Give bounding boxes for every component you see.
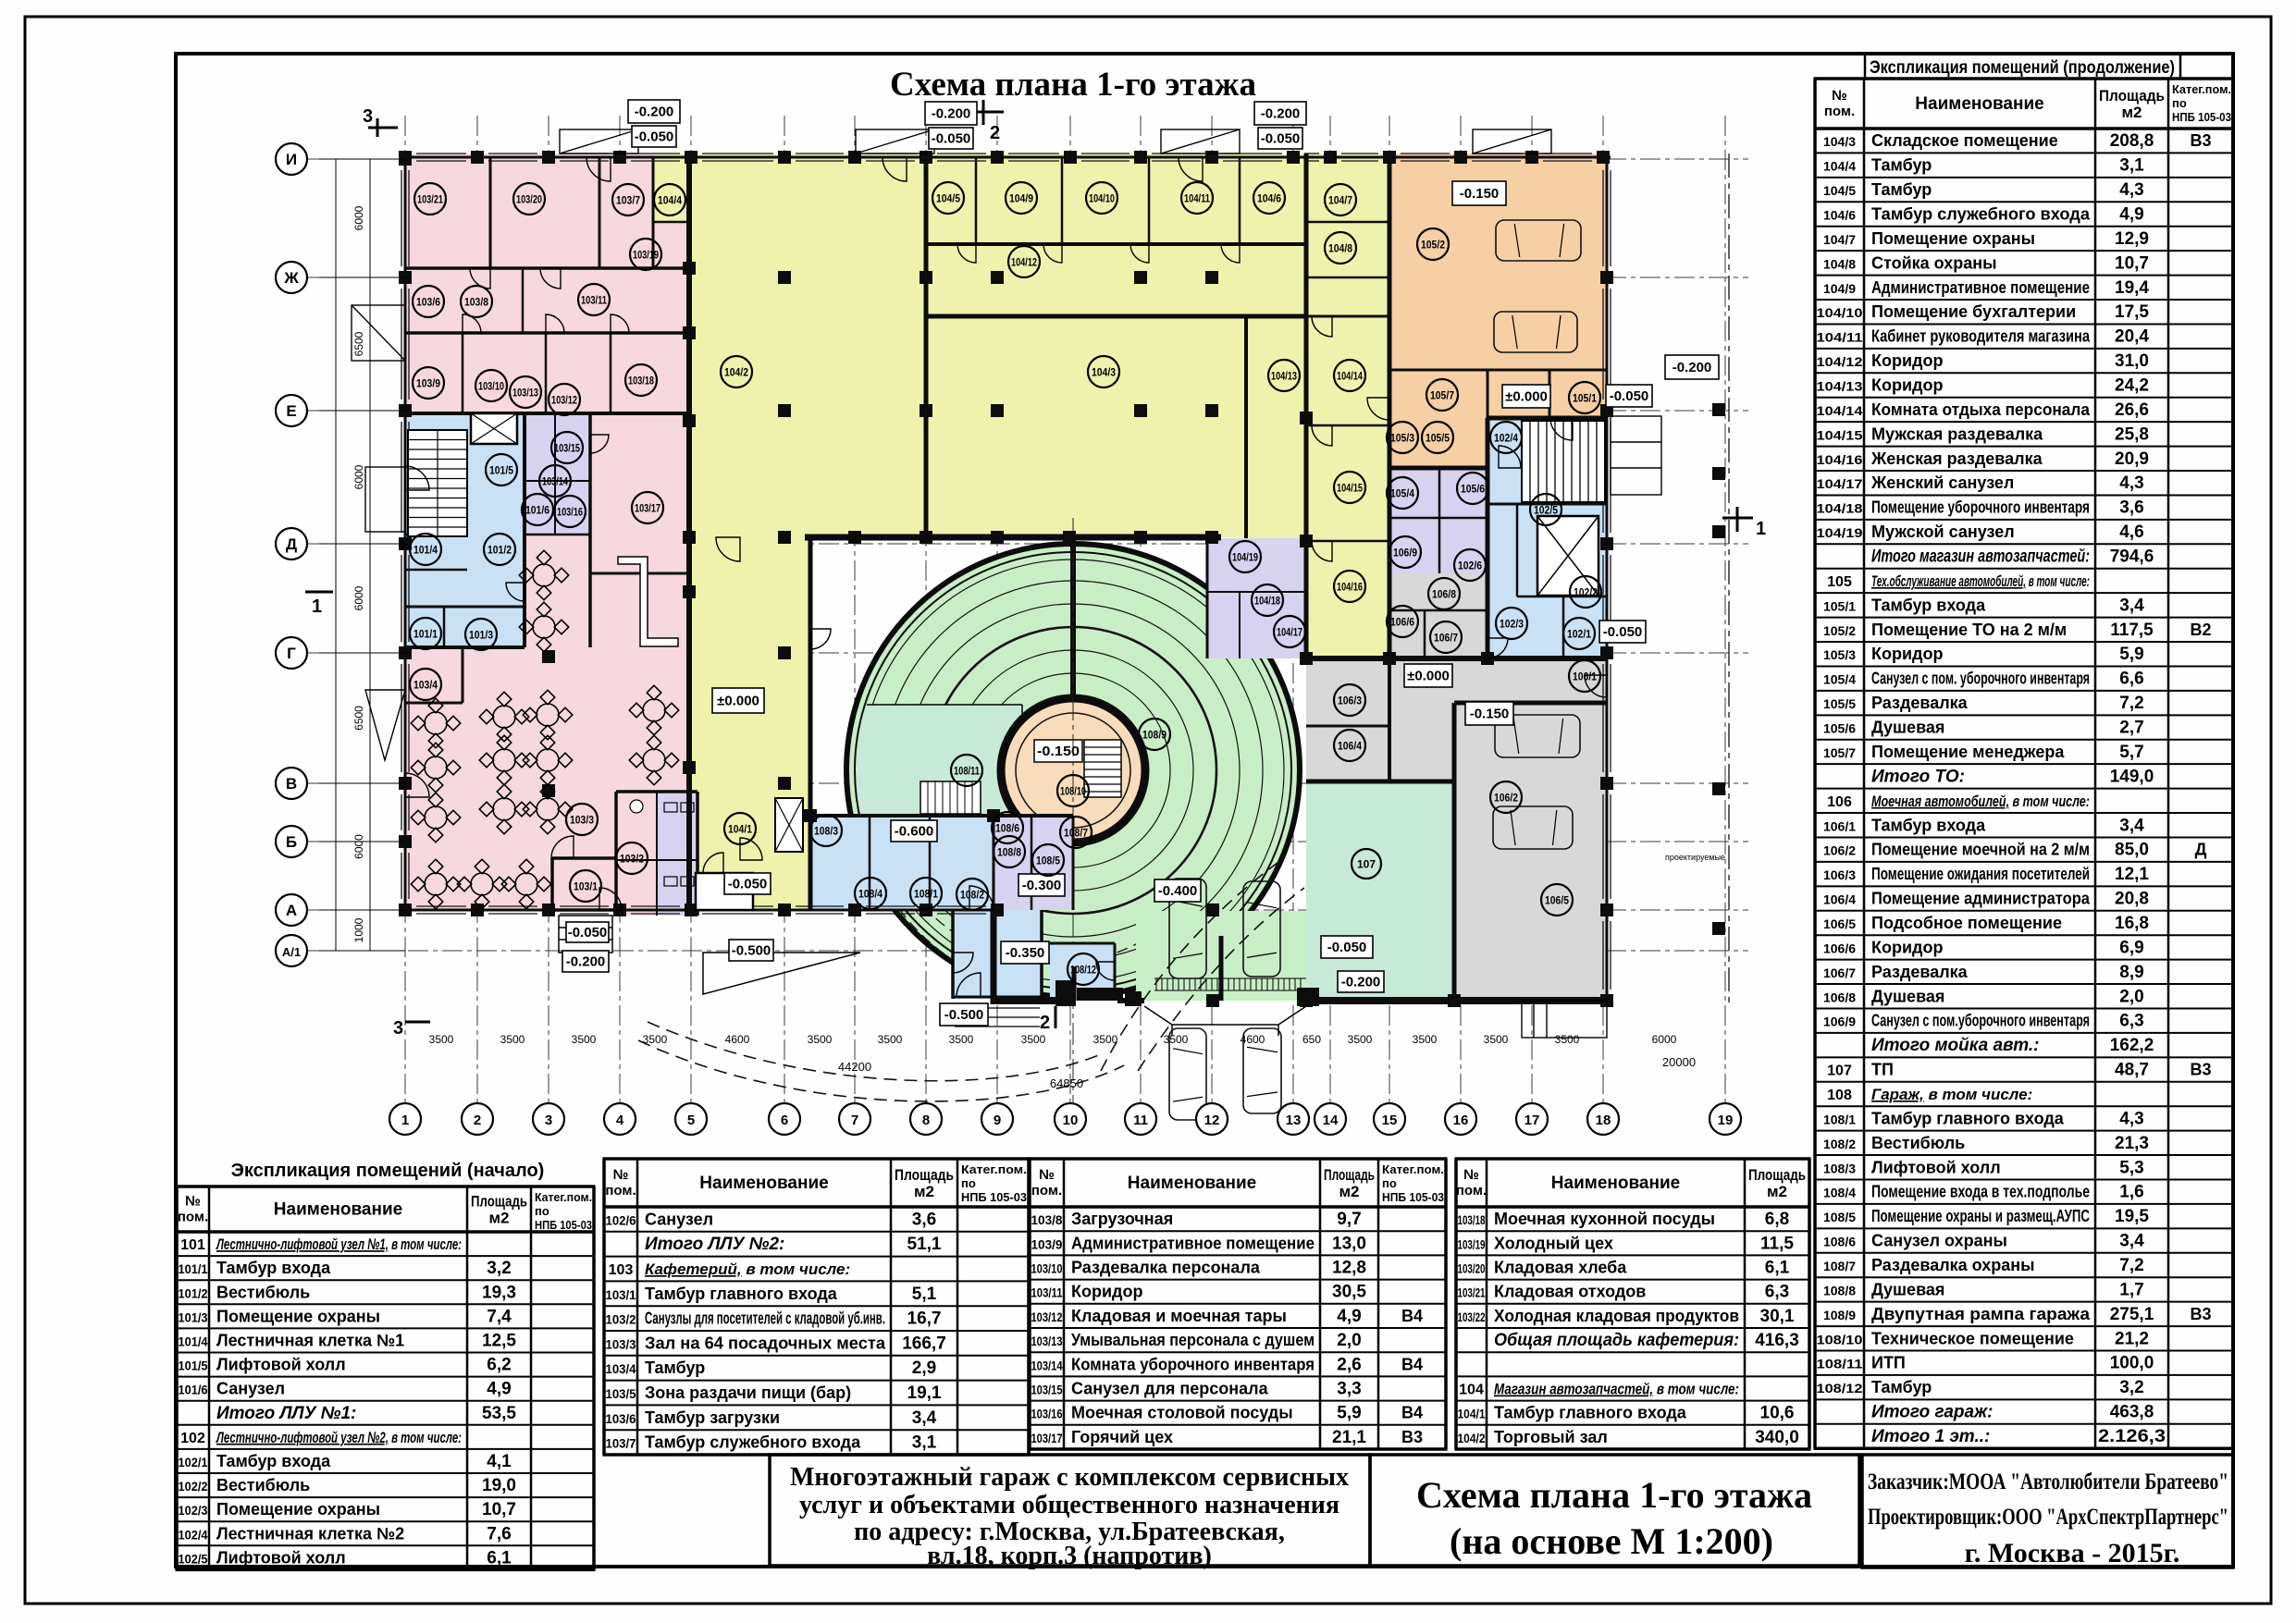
svg-text:103/22: 103/22 xyxy=(1458,1309,1486,1324)
svg-text:2: 2 xyxy=(474,1113,481,1128)
svg-text:3500: 3500 xyxy=(1348,1033,1373,1046)
svg-text:102/5: 102/5 xyxy=(1534,504,1558,517)
svg-text:105/1: 105/1 xyxy=(1823,598,1856,613)
svg-text:108/5: 108/5 xyxy=(1823,1210,1856,1224)
svg-text:(на основе М 1:200): (на основе М 1:200) xyxy=(1450,1520,1773,1562)
svg-text:3,1: 3,1 xyxy=(2119,156,2144,176)
svg-text:102/4: 102/4 xyxy=(179,1527,208,1542)
svg-text:Помещение охраны и размещ.АУПС: Помещение охраны и размещ.АУПС xyxy=(1871,1207,2090,1225)
svg-text:101/5: 101/5 xyxy=(179,1359,208,1373)
svg-text:Наименование: Наименование xyxy=(699,1174,828,1193)
svg-text:102/1: 102/1 xyxy=(1567,628,1591,641)
svg-text:2: 2 xyxy=(990,123,1000,143)
svg-text:Санузел охраны: Санузел охраны xyxy=(1871,1232,2007,1250)
svg-text:4,6: 4,6 xyxy=(2119,523,2143,542)
svg-text:104/15: 104/15 xyxy=(1337,482,1363,495)
svg-text:149,0: 149,0 xyxy=(2110,767,2154,786)
svg-text:Тамбур главного входа: Тамбур главного входа xyxy=(1494,1404,1687,1422)
svg-text:416,3: 416,3 xyxy=(1755,1331,1799,1350)
svg-text:-0.200: -0.200 xyxy=(932,106,971,122)
svg-text:Гараж, в том числе:: Гараж, в том числе: xyxy=(1871,1086,2032,1103)
svg-text:3: 3 xyxy=(393,1018,403,1039)
svg-text:104/19: 104/19 xyxy=(1817,525,1863,540)
svg-text:Женский санузел: Женский санузел xyxy=(1870,473,2014,492)
svg-text:104/1: 104/1 xyxy=(1458,1407,1486,1421)
svg-text:6,1: 6,1 xyxy=(487,1548,512,1568)
svg-text:3,2: 3,2 xyxy=(487,1259,511,1278)
svg-text:106/3: 106/3 xyxy=(1338,695,1362,707)
svg-text:20,4: 20,4 xyxy=(2115,327,2149,347)
svg-text:НПБ 105-03: НПБ 105-03 xyxy=(961,1190,1027,1204)
svg-text:проектируемые: проектируемые xyxy=(1665,853,1725,862)
svg-text:Итого ЛЛУ №2:: Итого ЛЛУ №2: xyxy=(645,1235,784,1254)
svg-text:3,4: 3,4 xyxy=(2119,1232,2144,1251)
svg-text:Тамбур входа: Тамбур входа xyxy=(1871,596,1986,614)
svg-text:104/2: 104/2 xyxy=(1458,1431,1486,1445)
svg-text:104/6: 104/6 xyxy=(1257,192,1281,205)
svg-text:В4: В4 xyxy=(1401,1355,1423,1373)
svg-text:Тамбур служебного входа: Тамбур служебного входа xyxy=(645,1433,861,1452)
svg-text:20,9: 20,9 xyxy=(2115,449,2149,469)
svg-text:103/8: 103/8 xyxy=(1031,1212,1063,1227)
svg-text:101/4: 101/4 xyxy=(414,544,438,557)
svg-text:3,6: 3,6 xyxy=(912,1210,936,1229)
svg-text:3,3: 3,3 xyxy=(1337,1380,1361,1399)
svg-text:пом.: пом. xyxy=(1824,104,1855,119)
svg-text:6,1: 6,1 xyxy=(1765,1259,1790,1278)
svg-text:пом.: пом. xyxy=(178,1210,208,1225)
svg-text:Лифтовой холл: Лифтовой холл xyxy=(1871,1158,2001,1176)
svg-text:103/4: 103/4 xyxy=(606,1361,636,1376)
svg-text:Моечная столовой посуды: Моечная столовой посуды xyxy=(1071,1404,1293,1422)
svg-text:101/6: 101/6 xyxy=(179,1383,208,1397)
svg-text:Тамбур входа: Тамбур входа xyxy=(216,1259,331,1277)
svg-text:6: 6 xyxy=(781,1113,788,1128)
svg-text:4600: 4600 xyxy=(725,1033,750,1046)
svg-text:19,1: 19,1 xyxy=(907,1383,942,1403)
svg-text:Коридор: Коридор xyxy=(1871,376,1943,395)
svg-text:11,5: 11,5 xyxy=(1760,1234,1794,1253)
svg-text:ТП: ТП xyxy=(1871,1061,1894,1079)
svg-text:101/2: 101/2 xyxy=(179,1285,208,1300)
svg-text:Е: Е xyxy=(286,402,296,420)
svg-text:106/6: 106/6 xyxy=(1823,941,1856,955)
svg-text:104/8: 104/8 xyxy=(1823,256,1856,271)
svg-text:64850: 64850 xyxy=(1050,1076,1083,1090)
svg-text:Санузел: Санузел xyxy=(216,1380,285,1398)
svg-text:104/11: 104/11 xyxy=(1184,192,1210,205)
svg-text:19: 19 xyxy=(1718,1113,1734,1128)
svg-text:162,2: 162,2 xyxy=(2110,1036,2154,1055)
svg-text:166,7: 166,7 xyxy=(902,1334,946,1353)
svg-text:пом.: пом. xyxy=(605,1183,636,1199)
svg-text:В4: В4 xyxy=(1401,1404,1423,1422)
svg-text:5,3: 5,3 xyxy=(2119,1158,2143,1177)
svg-text:103/3: 103/3 xyxy=(570,814,594,827)
svg-text:-0.050: -0.050 xyxy=(1603,624,1643,640)
svg-text:4,1: 4,1 xyxy=(487,1452,512,1471)
svg-text:Тамбур главного входа: Тамбур главного входа xyxy=(1871,1109,2065,1127)
svg-text:106/2: 106/2 xyxy=(1494,792,1518,805)
svg-text:106/7: 106/7 xyxy=(1434,632,1458,645)
svg-text:6000: 6000 xyxy=(352,205,365,230)
svg-text:108/1: 108/1 xyxy=(1823,1112,1856,1126)
svg-text:№: № xyxy=(613,1167,629,1183)
svg-text:Вестибюль: Вестибюль xyxy=(216,1476,310,1494)
svg-text:108/10: 108/10 xyxy=(1817,1332,1863,1346)
svg-text:101/4: 101/4 xyxy=(179,1334,208,1348)
svg-text:105/6: 105/6 xyxy=(1823,721,1856,736)
svg-text:103/10: 103/10 xyxy=(478,380,504,393)
svg-text:19,5: 19,5 xyxy=(2115,1207,2149,1226)
svg-text:108/4: 108/4 xyxy=(858,888,883,901)
svg-text:105/4: 105/4 xyxy=(1823,672,1856,687)
svg-text:Наименование: Наименование xyxy=(1551,1174,1680,1193)
svg-text:106/8: 106/8 xyxy=(1823,990,1856,1004)
svg-text:104/16: 104/16 xyxy=(1337,581,1363,594)
svg-text:12,1: 12,1 xyxy=(2115,865,2149,884)
svg-text:№: № xyxy=(1039,1167,1055,1183)
svg-text:101/5: 101/5 xyxy=(489,464,513,477)
svg-text:4,9: 4,9 xyxy=(487,1380,511,1399)
svg-text:13,0: 13,0 xyxy=(1332,1234,1366,1253)
svg-text:Тамбур служебного входа: Тамбур служебного входа xyxy=(1871,205,2091,224)
svg-text:106/9: 106/9 xyxy=(1393,547,1417,559)
svg-text:102/5: 102/5 xyxy=(179,1551,208,1566)
svg-text:-0.050: -0.050 xyxy=(635,129,674,145)
svg-text:31,0: 31,0 xyxy=(2115,351,2149,371)
svg-text:103/14: 103/14 xyxy=(1031,1358,1063,1372)
svg-text:2,0: 2,0 xyxy=(2119,987,2143,1006)
svg-text:101/1: 101/1 xyxy=(414,628,438,641)
svg-text:-0.300: -0.300 xyxy=(1022,878,1062,893)
svg-text:Проектировщик:ООО "АрхСпектрПа: Проектировщик:ООО "АрхСпектрПартнерс" xyxy=(1868,1505,2228,1530)
svg-text:Тамбур входа: Тамбур входа xyxy=(1871,816,1986,834)
svg-text:-0.050: -0.050 xyxy=(932,131,971,147)
svg-text:Лифтовой холл: Лифтовой холл xyxy=(216,1356,346,1374)
svg-text:103/15: 103/15 xyxy=(554,442,580,455)
svg-text:108: 108 xyxy=(1827,1088,1852,1103)
svg-text:Тамбур: Тамбур xyxy=(1871,1378,1932,1396)
svg-text:Кладовая хлеба: Кладовая хлеба xyxy=(1494,1259,1627,1277)
svg-text:108/10: 108/10 xyxy=(1060,785,1086,798)
svg-text:106/8: 106/8 xyxy=(1432,588,1456,601)
svg-text:9,7: 9,7 xyxy=(1337,1210,1361,1229)
svg-text:7,6: 7,6 xyxy=(487,1524,511,1543)
svg-text:Г: Г xyxy=(287,645,296,662)
svg-text:103/13: 103/13 xyxy=(512,387,538,400)
svg-text:12,8: 12,8 xyxy=(1332,1259,1366,1278)
svg-text:7,4: 7,4 xyxy=(487,1307,512,1326)
svg-text:Экспликация помещений (продолж: Экспликация помещений (продолжение) xyxy=(1870,58,2175,78)
svg-text:НПБ 105-03: НПБ 105-03 xyxy=(1382,1190,1444,1204)
svg-text:105: 105 xyxy=(1827,574,1852,590)
svg-text:3500: 3500 xyxy=(643,1033,668,1046)
svg-text:13: 13 xyxy=(1286,1113,1302,1128)
svg-text:106: 106 xyxy=(1827,794,1852,810)
svg-text:103/21: 103/21 xyxy=(417,193,443,206)
svg-text:НПБ 105-03: НПБ 105-03 xyxy=(535,1218,592,1232)
svg-text:103/9: 103/9 xyxy=(1031,1236,1063,1251)
svg-text:6000: 6000 xyxy=(352,834,365,859)
svg-text:104/15: 104/15 xyxy=(1817,427,1863,442)
svg-text:103/14: 103/14 xyxy=(542,475,568,488)
svg-text:103/7: 103/7 xyxy=(606,1436,636,1451)
svg-text:103/11: 103/11 xyxy=(581,294,607,307)
svg-text:1,7: 1,7 xyxy=(2119,1280,2143,1299)
svg-text:108/2: 108/2 xyxy=(960,889,984,902)
svg-text:19,4: 19,4 xyxy=(2115,278,2149,298)
svg-text:Площадь: Площадь xyxy=(1748,1166,1806,1184)
svg-text:105/1: 105/1 xyxy=(1573,392,1597,405)
svg-text:105/7: 105/7 xyxy=(1823,745,1856,760)
svg-text:108/9: 108/9 xyxy=(1823,1308,1856,1322)
svg-text:№: № xyxy=(185,1194,201,1210)
svg-text:103/19: 103/19 xyxy=(633,249,659,262)
svg-text:48,7: 48,7 xyxy=(2115,1061,2149,1080)
svg-text:Административное помещение: Административное помещение xyxy=(1871,278,2090,297)
svg-text:Площадь: Площадь xyxy=(895,1166,954,1184)
svg-text:4,9: 4,9 xyxy=(1337,1307,1361,1326)
svg-text:16,7: 16,7 xyxy=(907,1309,942,1329)
svg-text:102/6: 102/6 xyxy=(1458,559,1482,572)
svg-text:103/9: 103/9 xyxy=(416,377,440,390)
svg-text:104/2: 104/2 xyxy=(724,366,748,379)
svg-text:Техническое помещение: Техническое помещение xyxy=(1871,1329,2074,1347)
svg-text:105/3: 105/3 xyxy=(1390,432,1414,445)
svg-text:Моечная автомобилей, в том чис: Моечная автомобилей, в том числе: xyxy=(1871,793,2090,810)
svg-text:Раздевалка охраны: Раздевалка охраны xyxy=(1871,1256,2034,1274)
svg-text:104/10: 104/10 xyxy=(1817,305,1863,320)
svg-text:17,5: 17,5 xyxy=(2115,302,2149,322)
svg-text:Коридор: Коридор xyxy=(1871,938,1943,956)
svg-text:106/1: 106/1 xyxy=(1573,670,1597,683)
svg-text:1,6: 1,6 xyxy=(2119,1183,2143,1202)
svg-text:Зона раздачи пищи (бар): Зона раздачи пищи (бар) xyxy=(645,1383,851,1402)
svg-text:2: 2 xyxy=(1040,1013,1050,1033)
svg-text:104: 104 xyxy=(1459,1383,1484,1398)
svg-text:услуг и объектами общественног: услуг и объектами общественного назначен… xyxy=(799,1491,1339,1519)
svg-text:24,2: 24,2 xyxy=(2115,376,2149,396)
svg-text:Комната отдыха персонала: Комната отдыха персонала xyxy=(1871,400,2091,419)
svg-text:м2: м2 xyxy=(1767,1183,1787,1200)
svg-text:2,9: 2,9 xyxy=(912,1359,936,1378)
svg-text:Помещение входа в тех.подполье: Помещение входа в тех.подполье xyxy=(1871,1183,2090,1201)
svg-text:103/17: 103/17 xyxy=(1031,1431,1063,1445)
svg-text:Санузлы для посетителей с клад: Санузлы для посетителей с кладовой уб.ин… xyxy=(645,1309,885,1328)
svg-text:103/17: 103/17 xyxy=(635,502,660,515)
svg-text:Схема плана 1-го этажа: Схема плана 1-го этажа xyxy=(1416,1474,1812,1516)
svg-text:4,3: 4,3 xyxy=(2119,1109,2143,1128)
svg-text:Зал на 64 посадочных места: Зал на 64 посадочных места xyxy=(645,1334,886,1352)
svg-text:Душевая: Душевая xyxy=(1871,987,1944,1005)
svg-text:Тамбур загрузки: Тамбур загрузки xyxy=(645,1408,780,1427)
svg-text:Санузел с пом.уборочного инвен: Санузел с пом.уборочного инвентаря xyxy=(1871,1012,2090,1030)
svg-text:106/4: 106/4 xyxy=(1823,892,1856,907)
svg-text:30,5: 30,5 xyxy=(1332,1283,1366,1302)
svg-text:101/3: 101/3 xyxy=(179,1309,208,1324)
svg-text:104/3: 104/3 xyxy=(1823,134,1856,149)
svg-text:108/1: 108/1 xyxy=(914,888,938,901)
svg-text:Торговый зал: Торговый зал xyxy=(1494,1428,1608,1446)
svg-text:-0.050: -0.050 xyxy=(1610,388,1649,404)
svg-text:Тамбур: Тамбур xyxy=(1871,156,1932,175)
svg-text:3,4: 3,4 xyxy=(2119,596,2144,615)
svg-text:Тамбур: Тамбур xyxy=(645,1359,705,1377)
svg-text:Общая площадь кафетерия:: Общая площадь кафетерия: xyxy=(1494,1331,1739,1350)
svg-text:Складское помещение: Складское помещение xyxy=(1871,131,2058,150)
svg-text:5,9: 5,9 xyxy=(1337,1404,1361,1423)
svg-text:104/17: 104/17 xyxy=(1277,626,1302,639)
svg-text:108/3: 108/3 xyxy=(814,825,838,838)
svg-text:7: 7 xyxy=(851,1113,858,1128)
svg-text:104/10: 104/10 xyxy=(1089,192,1115,205)
svg-text:Тамбур входа: Тамбур входа xyxy=(216,1452,331,1470)
svg-text:53,5: 53,5 xyxy=(482,1404,516,1423)
svg-text:1: 1 xyxy=(1756,519,1766,539)
svg-text:Помещение бухгалтерии: Помещение бухгалтерии xyxy=(1871,302,2076,321)
svg-text:103/16: 103/16 xyxy=(557,506,583,519)
svg-text:5,1: 5,1 xyxy=(912,1285,937,1304)
svg-text:Площадь: Площадь xyxy=(2099,87,2165,105)
svg-text:104/3: 104/3 xyxy=(1092,366,1116,379)
svg-text:-0.400: -0.400 xyxy=(1158,883,1198,899)
svg-text:Экспликация помещений (начало): Экспликация помещений (начало) xyxy=(231,1161,545,1181)
svg-text:2.126,3: 2.126,3 xyxy=(2098,1427,2166,1446)
svg-text:106/2: 106/2 xyxy=(1823,843,1856,858)
svg-text:-0.200: -0.200 xyxy=(566,954,606,970)
svg-text:102/3: 102/3 xyxy=(179,1503,208,1518)
svg-text:103/7: 103/7 xyxy=(616,194,640,207)
svg-text:102/2: 102/2 xyxy=(1574,586,1598,599)
svg-text:Итого мойка авт.:: Итого мойка авт.: xyxy=(1871,1036,2039,1055)
svg-text:1000: 1000 xyxy=(352,917,365,942)
svg-text:А/1: А/1 xyxy=(282,945,301,959)
svg-text:340,0: 340,0 xyxy=(1755,1428,1799,1447)
svg-text:Катег.пом.: Катег.пом. xyxy=(961,1162,1027,1176)
svg-text:102/3: 102/3 xyxy=(1500,618,1524,631)
svg-text:103/8: 103/8 xyxy=(464,296,488,309)
svg-text:3,6: 3,6 xyxy=(2119,498,2143,518)
svg-text:103/21: 103/21 xyxy=(1458,1285,1486,1300)
svg-text:Лестнично-лифтовой узел №2, в: Лестнично-лифтовой узел №2, в том числе: xyxy=(216,1429,462,1446)
svg-text:Душевая: Душевая xyxy=(1871,719,1944,737)
svg-text:16: 16 xyxy=(1453,1113,1469,1128)
svg-text:463,8: 463,8 xyxy=(2110,1403,2154,1422)
svg-text:м2: м2 xyxy=(1339,1183,1359,1200)
svg-text:103/12: 103/12 xyxy=(551,394,577,407)
svg-text:107: 107 xyxy=(1827,1064,1852,1079)
svg-text:106/5: 106/5 xyxy=(1823,916,1856,931)
svg-text:106/9: 106/9 xyxy=(1823,1014,1856,1029)
svg-text:6500: 6500 xyxy=(352,706,365,731)
svg-text:Лестничная клетка №1: Лестничная клетка №1 xyxy=(216,1331,404,1349)
svg-text:6,9: 6,9 xyxy=(2119,938,2143,957)
svg-text:107: 107 xyxy=(1357,858,1376,871)
svg-text:104/6: 104/6 xyxy=(1823,208,1856,223)
svg-text:21,3: 21,3 xyxy=(2115,1134,2149,1153)
svg-text:103/1: 103/1 xyxy=(574,880,598,893)
svg-text:103/18: 103/18 xyxy=(628,375,654,387)
svg-text:10: 10 xyxy=(1063,1113,1079,1128)
svg-text:103/10: 103/10 xyxy=(1031,1261,1063,1276)
svg-text:21,2: 21,2 xyxy=(2115,1329,2149,1348)
svg-text:3500: 3500 xyxy=(1164,1033,1189,1046)
svg-text:Душевая: Душевая xyxy=(1871,1280,1944,1298)
svg-text:3500: 3500 xyxy=(1555,1033,1580,1046)
svg-text:Ж: Ж xyxy=(283,269,299,287)
svg-text:Вестибюль: Вестибюль xyxy=(216,1283,310,1301)
svg-text:Комната уборочного инвентаря: Комната уборочного инвентаря xyxy=(1071,1355,1315,1373)
svg-text:-0.350: -0.350 xyxy=(1006,945,1045,961)
svg-text:103/2: 103/2 xyxy=(620,853,644,866)
svg-text:51,1: 51,1 xyxy=(907,1235,942,1254)
svg-text:Помещение ТО на 2 м/м: Помещение ТО на 2 м/м xyxy=(1871,621,2067,639)
svg-text:-0.150: -0.150 xyxy=(1470,707,1510,722)
svg-text:-0.050: -0.050 xyxy=(728,877,768,892)
svg-text:3500: 3500 xyxy=(572,1033,597,1046)
svg-text:4,3: 4,3 xyxy=(2119,473,2143,493)
svg-text:10,6: 10,6 xyxy=(1760,1404,1795,1423)
svg-text:Магазин автозапчастей, в том ч: Магазин автозапчастей, в том числе: xyxy=(1494,1381,1739,1398)
svg-text:104/18: 104/18 xyxy=(1254,595,1280,608)
svg-text:5,9: 5,9 xyxy=(2119,645,2143,664)
svg-text:103/18: 103/18 xyxy=(1458,1212,1486,1227)
svg-text:85,0: 85,0 xyxy=(2115,841,2149,860)
svg-text:650: 650 xyxy=(1302,1033,1321,1046)
svg-text:9: 9 xyxy=(994,1113,1001,1128)
svg-text:106/7: 106/7 xyxy=(1823,965,1856,980)
svg-text:10,7: 10,7 xyxy=(482,1500,516,1519)
svg-text:-0.050: -0.050 xyxy=(568,925,608,941)
svg-text:Кафетерий, в том числе:: Кафетерий, в том числе: xyxy=(645,1260,850,1278)
svg-text:6000: 6000 xyxy=(352,585,365,610)
svg-text:Умывальная персонала с душем: Умывальная персонала с душем xyxy=(1071,1331,1315,1349)
svg-text:Схема плана 1-го этажа: Схема плана 1-го этажа xyxy=(890,66,1256,104)
svg-text:108/6: 108/6 xyxy=(1823,1235,1856,1249)
svg-text:м2: м2 xyxy=(914,1183,934,1200)
svg-text:Горячий цех: Горячий цех xyxy=(1071,1428,1173,1446)
svg-text:Загрузочная: Загрузочная xyxy=(1071,1210,1173,1228)
svg-text:108/8: 108/8 xyxy=(1823,1283,1856,1297)
svg-text:Д: Д xyxy=(286,535,297,553)
svg-text:275,1: 275,1 xyxy=(2110,1305,2154,1324)
svg-text:4,3: 4,3 xyxy=(2119,180,2143,200)
svg-text:Помещение уборочного инвентаря: Помещение уборочного инвентаря xyxy=(1871,498,2090,517)
svg-text:102/1: 102/1 xyxy=(179,1455,208,1469)
svg-text:101/2: 101/2 xyxy=(488,544,512,557)
svg-text:102/2: 102/2 xyxy=(179,1479,208,1494)
svg-text:104/5: 104/5 xyxy=(1823,183,1856,198)
svg-text:101/6: 101/6 xyxy=(525,504,549,517)
svg-text:8,9: 8,9 xyxy=(2119,963,2143,982)
svg-text:7,2: 7,2 xyxy=(2119,694,2143,713)
svg-text:3,4: 3,4 xyxy=(2119,816,2144,835)
svg-text:104/9: 104/9 xyxy=(1009,192,1033,205)
svg-text:6,3: 6,3 xyxy=(1765,1283,1789,1302)
svg-text:105/7: 105/7 xyxy=(1430,389,1454,402)
svg-text:106/3: 106/3 xyxy=(1823,867,1856,882)
svg-text:Заказчик:МООА "Автолюбители Бр: Заказчик:МООА "Автолюбители Братеево" xyxy=(1868,1469,2228,1494)
svg-text:103/20: 103/20 xyxy=(1458,1261,1486,1276)
svg-text:106/1: 106/1 xyxy=(1823,818,1856,833)
svg-text:108/5: 108/5 xyxy=(1036,855,1060,867)
svg-text:101: 101 xyxy=(180,1237,205,1253)
svg-text:3,2: 3,2 xyxy=(2119,1378,2143,1397)
svg-text:Итого гараж:: Итого гараж: xyxy=(1871,1403,1993,1422)
svg-text:3,4: 3,4 xyxy=(912,1408,937,1428)
svg-text:Холодный цех: Холодный цех xyxy=(1494,1234,1613,1252)
